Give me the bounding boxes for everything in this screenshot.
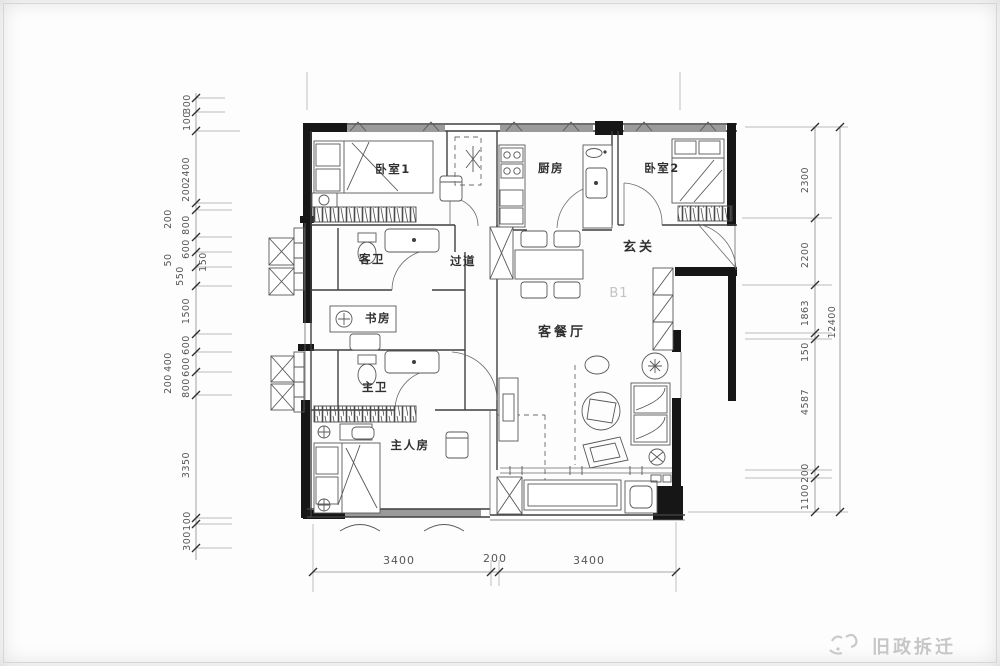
lounge-chair (583, 437, 628, 468)
dim-left-13: 600 (181, 357, 192, 377)
pillow (699, 141, 720, 154)
dim-left-3: 200 (181, 182, 192, 202)
dim-right-1: 2200 (800, 242, 811, 268)
dim-left-10: 1500 (181, 298, 192, 324)
door-master-bath (395, 370, 435, 410)
ac-platform (269, 228, 304, 412)
watermark: 旧政拆迁 (830, 635, 956, 658)
room-label-kitchen: 厨房 (538, 161, 564, 175)
chair (446, 432, 468, 458)
dim-left-14: 200 (163, 374, 174, 394)
wardrobe-bedroom2 (678, 206, 732, 221)
pillow (316, 447, 338, 474)
wardrobe-master (314, 406, 416, 422)
toilet-tank (358, 233, 376, 242)
dim-left-2: 2400 (181, 157, 192, 183)
wall-right-foyer (728, 271, 736, 401)
floor-plan-page: 卧室1 厨房 卧室2 客卫 过道 玄关 书房 客餐厅 主卫 主人房 B1 300… (0, 0, 1000, 666)
dim-right-4: 4587 (800, 389, 811, 415)
wall-top-middle (595, 121, 623, 135)
dim-left-16: 3350 (181, 452, 192, 478)
living-furniture (499, 353, 670, 468)
dim-left-9: 550 (175, 266, 186, 286)
dining-chair (554, 231, 580, 247)
door-master-bedroom (452, 352, 497, 400)
room-label-guest-bath: 客卫 (358, 252, 385, 266)
balcony-furniture (497, 466, 672, 514)
tv-cabinet (499, 378, 518, 441)
room-label-living-dining: 客餐厅 (538, 324, 586, 340)
dim-right-6: 1100 (800, 484, 811, 510)
dim-bottom-2: 3400 (573, 554, 605, 567)
dim-right-0: 2300 (800, 167, 811, 193)
wardrobe-bedroom1 (313, 207, 416, 222)
door-bedroom1 (450, 198, 478, 226)
pillow (316, 169, 340, 191)
door-guest-bath (392, 250, 432, 290)
room-label-bedroom1: 卧室1 (375, 162, 411, 176)
dim-right-total: 12400 (827, 306, 838, 339)
balcony-bench (524, 480, 621, 510)
dining-table (515, 250, 583, 279)
room-label-master-bath: 主卫 (362, 380, 388, 394)
dim-left-8: 150 (198, 252, 209, 272)
room-label-bedroom2: 卧室2 (644, 161, 680, 175)
sink-drain (412, 238, 416, 242)
wall-left-lower (301, 400, 310, 518)
bedroom2-furniture (672, 139, 732, 221)
dim-left-15: 800 (181, 378, 192, 398)
room-label-study: 书房 (365, 311, 391, 325)
window-bedroom2 (624, 125, 726, 132)
kitchen-furniture (499, 145, 612, 228)
fridge (500, 190, 523, 206)
toilet-tank (358, 355, 376, 364)
sink-counter (385, 229, 439, 252)
dining-chair (521, 231, 547, 247)
dim-left-1: 100 (182, 111, 193, 131)
dining-furniture (490, 227, 583, 298)
dim-left-11: 600 (181, 335, 192, 355)
door-bedroom2 (624, 183, 662, 225)
watermark-text: 旧政拆迁 (872, 636, 956, 658)
sink-drain (412, 360, 416, 364)
furniture (269, 122, 732, 531)
floor-plan-canvas: 卧室1 厨房 卧室2 客卫 过道 玄关 书房 客餐厅 主卫 主人房 B1 300… (0, 0, 1000, 666)
shoe-cabinet (653, 268, 673, 350)
dining-chair (554, 282, 580, 298)
room-label-corridor: 过道 (450, 254, 476, 268)
dim-left-5: 800 (181, 215, 192, 235)
pillow (675, 141, 696, 154)
dim-left-12: 400 (163, 352, 174, 372)
room-label-master-bedroom: 主人房 (391, 438, 430, 452)
dim-right-2: 1863 (800, 300, 811, 326)
dim-left-6: 600 (181, 239, 192, 259)
wall-foyer-horizontal (675, 267, 737, 276)
dimension-chain-left: 300 100 2400 200 200 800 600 50 150 550 … (163, 93, 240, 560)
unit-code-label: B1 (609, 286, 628, 301)
watermark-logo-icon (830, 635, 856, 654)
chair (440, 176, 462, 201)
pillow (316, 144, 340, 166)
dim-left-18: 300 (182, 531, 193, 551)
room-label-foyer: 玄关 (623, 239, 655, 255)
dim-bottom-0: 3400 (383, 554, 415, 567)
dim-left-0: 300 (182, 94, 193, 114)
dim-right-5: 200 (800, 463, 811, 483)
dim-left-17: 100 (182, 511, 193, 531)
dining-chair (521, 282, 547, 298)
wall-right-living (672, 398, 681, 488)
dim-bottom-1: 200 (483, 552, 507, 565)
dim-left-4: 200 (163, 209, 174, 229)
dim-right-3: 150 (800, 342, 811, 362)
bedroom1-furniture (312, 141, 462, 222)
wall-nub-a (300, 216, 314, 223)
dim-left-7: 50 (163, 253, 174, 266)
pouf (585, 356, 609, 374)
desk-chair (350, 334, 380, 350)
coffee-table-top (587, 399, 616, 423)
